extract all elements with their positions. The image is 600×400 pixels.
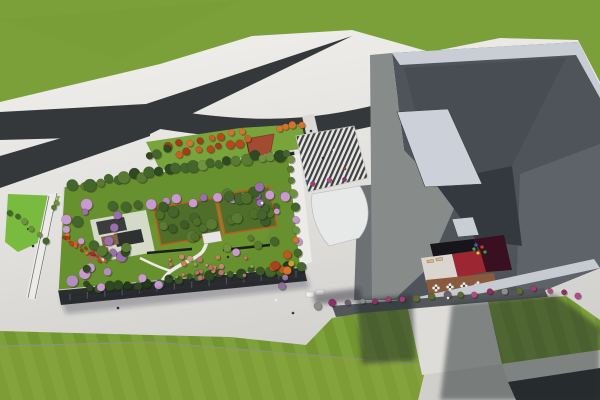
flower-drift-west-tree xyxy=(80,249,83,252)
west-corner-bushes-tree xyxy=(54,200,59,205)
rose-shrub-drift-tree xyxy=(243,274,247,278)
north-autumn-row-2-tree xyxy=(176,151,183,158)
plaza-south-shrubs-tree xyxy=(342,177,346,181)
forecourt-shrub-row-tree xyxy=(386,297,392,303)
garden-east-row-tree xyxy=(294,249,302,257)
pavilion-trees-tree xyxy=(104,236,113,245)
garden-east-row-tree xyxy=(287,155,295,163)
rose-shrub-drift-tree xyxy=(181,273,185,277)
rose-shrub-drift-tree xyxy=(219,264,224,269)
flower-drift-west-tree xyxy=(84,247,87,250)
east-shrub-group-tree xyxy=(561,290,566,295)
grove-a-trees-tree xyxy=(159,202,169,212)
garden-blossom-row-tree xyxy=(189,199,198,208)
flower-drift-west-tree xyxy=(85,251,88,254)
west-sidewalk-bushes-tree xyxy=(15,214,20,219)
rose-shrub-drift-tree xyxy=(197,257,203,263)
forecourt-shrub-row-tree xyxy=(399,296,405,302)
rose-shrub-drift-tree xyxy=(198,275,203,280)
forecourt-shrub-row-tree xyxy=(531,286,537,292)
forecourt-shrub-row-tree xyxy=(428,293,435,300)
west-sidewalk-bushes-tree xyxy=(7,210,13,216)
garden-west-grove-tree xyxy=(82,209,88,215)
person xyxy=(310,130,313,133)
garden-west-grove-tree xyxy=(66,275,78,287)
garden-north-perimeter-trees-tree xyxy=(222,156,231,165)
person xyxy=(292,312,295,315)
playground-equipment xyxy=(476,251,480,255)
north-autumn-row-2-tree xyxy=(235,140,244,149)
rose-shrub-drift-tree xyxy=(215,255,220,260)
garden-north-perimeter-trees-tree xyxy=(215,160,223,168)
flower-drift-west-tree xyxy=(93,253,95,255)
garden-south-hedge-tree xyxy=(256,267,265,276)
flower-drift-west-tree xyxy=(62,236,65,239)
east-shrub-group-tree xyxy=(548,288,553,293)
person xyxy=(322,157,325,160)
garden-north-perimeter-trees-tree xyxy=(67,179,78,190)
person xyxy=(117,307,120,310)
plaza-edge-blossoms-tree xyxy=(274,208,280,214)
grove-a-trees-tree xyxy=(180,220,188,228)
garden-north-perimeter-trees-tree xyxy=(84,179,97,192)
flower-drift-west-tree xyxy=(98,259,102,263)
grove-a-trees-tree xyxy=(191,233,199,241)
rose-shrub-drift-tree xyxy=(175,275,178,278)
garden-lawn-singles-tree xyxy=(248,235,254,241)
west-sidewalk-bushes-tree xyxy=(43,238,50,245)
garden-west-grove-tree xyxy=(81,199,93,211)
east-shrub-group-tree xyxy=(575,293,581,299)
garden-blossom-row-tree xyxy=(108,201,118,211)
autumn-east-grove-tree xyxy=(283,266,291,274)
north-autumn-row-2-tree xyxy=(226,140,235,149)
pavilion-trees-tree xyxy=(113,211,121,219)
garden-west-grove-tree xyxy=(63,226,70,233)
forecourt-shrub-row-tree xyxy=(372,299,378,305)
triangle-east-trees-tree xyxy=(289,121,297,129)
garden-lawn-singles-tree xyxy=(254,241,262,249)
flower-drift-west-tree xyxy=(79,244,82,247)
garden-blossom-row-tree xyxy=(265,190,274,199)
garden-south-hedge-tree xyxy=(113,280,123,290)
rose-shrub-drift-tree xyxy=(205,264,208,267)
person xyxy=(275,299,278,302)
garden-lawn-singles-tree xyxy=(223,244,232,253)
garden-south-hedge-tree xyxy=(86,285,93,292)
garden-blossom-row-tree xyxy=(213,193,222,202)
garden-lawn-singles-tree xyxy=(270,237,279,246)
person xyxy=(204,246,207,249)
south-blossom-trees-tree xyxy=(154,281,163,290)
garden-north-perimeter-trees-tree xyxy=(265,152,274,161)
forecourt-shrub-row-tree xyxy=(458,292,464,298)
main-building xyxy=(370,42,600,306)
grove-a-trees-tree xyxy=(155,210,164,219)
rose-shrub-drift-tree xyxy=(244,256,248,260)
plaza-south-shrubs-tree xyxy=(327,178,332,183)
plaza-edge-blossoms-tree xyxy=(280,192,290,202)
person xyxy=(333,149,336,152)
grove-b-trees-tree xyxy=(241,193,252,204)
flower-drift-west-tree xyxy=(73,244,77,248)
forecourt-shrub-row-tree xyxy=(345,300,351,306)
garden-north-perimeter-trees-tree xyxy=(97,179,105,187)
south-blossom-trees-tree xyxy=(97,283,105,291)
rose-shrub-drift-tree xyxy=(250,264,254,268)
pavilion-trees-tree xyxy=(121,243,131,253)
rose-shrub-drift-tree xyxy=(168,258,171,261)
flower-drift-west-tree xyxy=(104,260,107,263)
north-autumn-row-1-tree xyxy=(228,129,235,136)
garden-west-grove-tree xyxy=(83,265,91,273)
north-autumn-row-2-tree xyxy=(207,145,215,153)
garden-north-perimeter-trees-tree xyxy=(187,160,199,172)
west-sidewalk-bushes-tree xyxy=(21,218,27,224)
forecourt-shrub-row-tree xyxy=(413,295,420,302)
person xyxy=(32,245,35,248)
person xyxy=(261,202,264,205)
garden-east-row-tree xyxy=(287,166,294,173)
west-sidewalk-bushes-tree xyxy=(37,232,42,237)
north-autumn-row-1-tree xyxy=(209,135,215,141)
garden-north-perimeter-trees-tree xyxy=(154,167,163,176)
north-autumn-row-1-tree xyxy=(217,133,225,141)
plaza-edge-blossoms-tree xyxy=(255,183,264,192)
person xyxy=(227,256,230,259)
grove-a-trees-tree xyxy=(159,221,168,230)
person xyxy=(306,180,309,183)
garden-west-grove-tree xyxy=(61,215,71,225)
garden-north-perimeter-trees-tree xyxy=(231,156,241,166)
forecourt-shrub-row-tree xyxy=(487,289,493,295)
forecourt-shrub-row-tree xyxy=(516,288,523,295)
garden-blossom-row-tree xyxy=(146,199,157,210)
north-autumn-row-1-tree xyxy=(197,137,204,144)
rose-shrub-drift-tree xyxy=(196,271,200,275)
rose-shrub-drift-tree xyxy=(218,270,224,276)
north-green-trees-tree xyxy=(164,145,171,152)
garden-south-hedge-tree xyxy=(187,274,193,280)
rose-shrub-drift-tree xyxy=(179,254,185,260)
forecourt-shrub-row-tree xyxy=(471,292,477,298)
garden-west-grove-tree xyxy=(78,238,85,245)
grove-b-trees-tree xyxy=(232,213,243,224)
garden-south-hedge-tree xyxy=(165,275,174,284)
playground-equipment xyxy=(472,247,476,251)
garden-south-hedge-tree xyxy=(297,262,306,271)
garden-east-row-tree xyxy=(292,216,299,223)
person xyxy=(344,168,347,171)
garden-north-perimeter-trees-tree xyxy=(143,167,154,178)
north-autumn-row-2-tree xyxy=(182,148,190,156)
planter-box xyxy=(306,292,314,297)
autumn-east-grove-tree xyxy=(288,260,294,266)
grove-a-trees-tree xyxy=(168,224,177,233)
garden-blossom-row-tree xyxy=(121,202,131,212)
rose-shrub-drift-tree xyxy=(187,256,193,262)
building-east-shadow xyxy=(440,295,600,400)
garden-blossom-row-tree xyxy=(200,194,208,202)
north-autumn-row-2-tree xyxy=(244,135,251,142)
garden-lawn-singles-tree xyxy=(232,248,240,256)
garden-north-perimeter-trees-tree xyxy=(118,171,130,183)
autumn-east-grove-tree xyxy=(293,237,299,243)
person xyxy=(169,276,172,279)
grove-b-trees-tree xyxy=(224,191,234,201)
grove-a-trees-tree xyxy=(168,207,179,218)
forecourt-shrub-row-tree xyxy=(328,299,336,307)
grove-a-trees-tree xyxy=(193,218,201,226)
pavilion-trees-tree xyxy=(97,246,108,257)
garden-north-perimeter-trees-tree xyxy=(206,158,215,167)
garden-blossom-row-tree xyxy=(172,194,182,204)
garden-east-row-tree xyxy=(288,177,295,184)
garden-south-hedge-tree xyxy=(227,271,234,278)
playground-equipment xyxy=(480,245,484,249)
garden-south-hedge-tree xyxy=(134,282,142,290)
triangle-east-trees-tree xyxy=(276,126,283,133)
north-autumn-row-1-tree xyxy=(187,140,194,147)
north-autumn-row-2-tree xyxy=(215,143,221,149)
flower-drift-west-tree xyxy=(67,239,70,242)
autumn-east-grove-tree xyxy=(283,251,291,259)
north-autumn-row-1-tree xyxy=(175,139,182,146)
rose-shrub-drift-tree xyxy=(193,262,197,266)
garden-west-grove-tree xyxy=(72,216,83,227)
pavilion-trees-tree xyxy=(110,223,119,232)
render-stage xyxy=(0,0,600,400)
rose-shrub-drift-tree xyxy=(169,262,173,266)
aerial-architectural-render xyxy=(0,0,600,400)
south-blossom-trees-tree xyxy=(104,268,112,276)
garden-south-hedge-tree xyxy=(123,282,131,290)
building-west-shadow xyxy=(356,295,416,364)
rose-shrub-drift-tree xyxy=(181,261,187,267)
autumn-east-grove-tree xyxy=(271,261,280,270)
north-autumn-row-2-tree xyxy=(196,146,203,153)
garden-east-row-tree xyxy=(292,226,300,234)
north-green-trees-tree xyxy=(152,149,161,158)
south-blossom-trees-tree xyxy=(138,274,146,282)
flower-drift-west-tree xyxy=(69,241,73,245)
forecourt-shrub-row-tree xyxy=(314,302,322,310)
plaza-edge-blossoms-tree xyxy=(257,210,267,220)
west-sidewalk-bushes-tree xyxy=(28,226,34,232)
forecourt-shrub-row-tree xyxy=(501,288,508,295)
garden-north-perimeter-trees-tree xyxy=(170,163,180,173)
grove-a-trees-tree xyxy=(206,218,217,229)
triangle-east-trees-tree xyxy=(282,124,288,130)
triangle-east-trees-tree xyxy=(299,122,306,129)
garden-east-row-tree xyxy=(291,203,300,212)
person xyxy=(447,297,450,300)
garden-blossom-row-tree xyxy=(134,200,143,209)
forecourt-shrub-row-tree xyxy=(360,299,365,304)
flower-drift-west-tree xyxy=(96,255,98,257)
playground-equipment xyxy=(483,250,487,254)
plaza-south-shrubs-tree xyxy=(310,181,315,186)
garden-north-perimeter-trees-tree xyxy=(104,174,113,183)
north-autumn-row-1-tree xyxy=(239,128,246,135)
playground-equipment xyxy=(474,243,478,247)
